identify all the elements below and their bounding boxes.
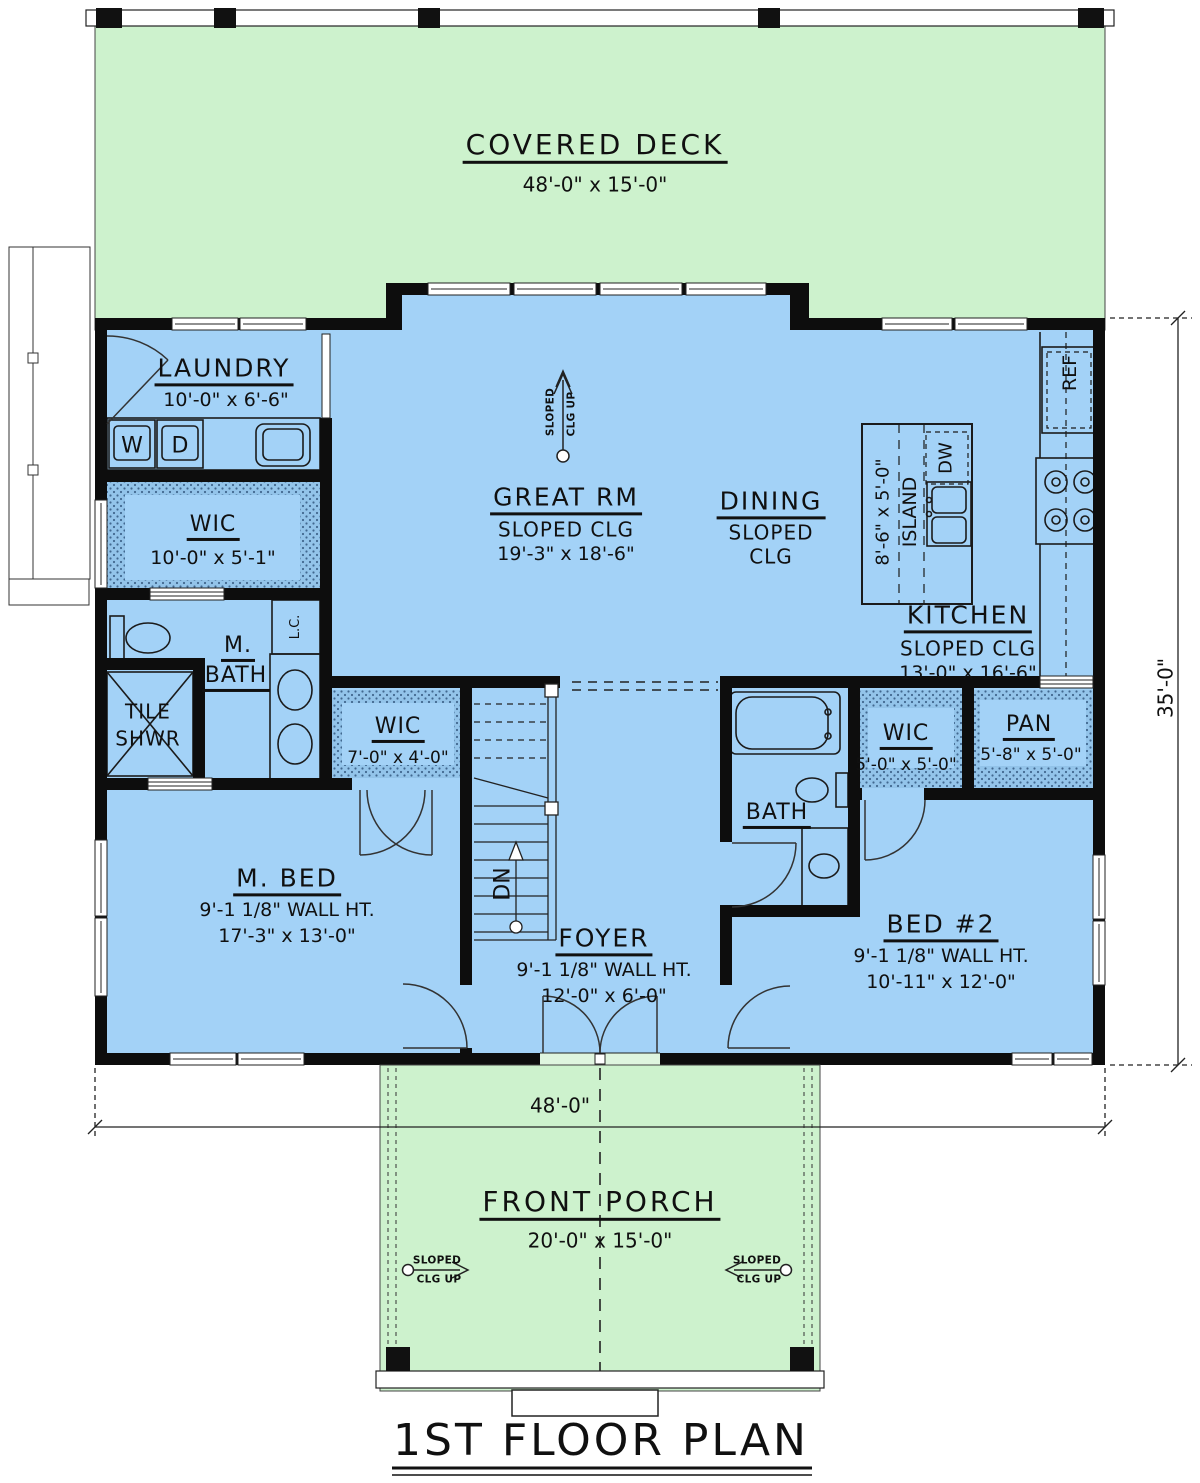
bed2-wall-ht: 9'-1 1/8" WALL HT. [853,947,1028,967]
porch-slope-right-2: CLG UP [737,1274,782,1285]
laundry-label: LAUNDRY [155,355,294,386]
tile-shower-label-1: TILE [125,702,171,723]
dining-label: DINING [717,488,826,519]
island-label: ISLAND [901,477,921,548]
pantry-label: PAN [1003,713,1055,741]
wic-bed2-dims: 5'-0" x 5'-0" [855,757,956,775]
laundry-dims: 10'-0" x 6'-6" [163,391,288,411]
overall-width-dim: 48'-0" [530,1096,590,1117]
washer-label: W [121,434,143,457]
wic-mbed-dims: 7'-0" x 4'-0" [347,750,448,768]
side-deck [9,247,90,605]
kitchen-dims: 13'-0" x 16'-6" [899,664,1037,684]
bed2-label: BED #2 [884,911,999,942]
master-bed-wall-ht: 9'-1 1/8" WALL HT. [199,901,374,921]
great-room-ceiling: SLOPED CLG [498,520,634,541]
overall-depth-dim: 35'-0" [1156,658,1177,718]
island-dims-label: 8'-6" x 5'-0" [875,458,894,565]
floor-plan: COVERED DECK 48'-0" x 15'-0" LAUNDRY 10'… [0,0,1200,1483]
great-slope-text-2: CLG UP [566,392,577,437]
master-bath-label-1: M. [221,634,255,662]
porch-slope-left-1: SLOPED [413,1255,461,1266]
bed2-dims: 10'-11" x 12'-0" [866,973,1016,993]
stairs-dn-label: DN [491,867,514,900]
master-bed-dims: 17'-3" x 13'-0" [218,927,356,947]
covered-deck-area [86,8,1114,330]
tile-shower-label-2: SHWR [115,729,180,750]
dishwasher-label: DW [938,442,957,474]
great-slope-text-1: SLOPED [545,388,556,436]
wic-bed2-label: WIC [880,722,933,750]
deck-dims: 48'-0" x 15'-0" [523,175,668,196]
refrigerator-label: REF [1061,355,1081,391]
foyer-wall-ht: 9'-1 1/8" WALL HT. [516,961,691,981]
dryer-label: D [172,434,189,457]
kitchen-ceiling: SLOPED CLG [900,639,1036,660]
deck-label: COVERED DECK [463,130,728,164]
great-room-label: GREAT RM [490,484,642,515]
master-bed-label: M. BED [233,865,341,896]
kitchen-label: KITCHEN [904,602,1032,633]
foyer-dims: 12'-0" x 6'-0" [541,987,666,1007]
porch-dims: 20'-0" x 15'-0" [528,1231,673,1252]
porch-slope-left-2: CLG UP [417,1274,462,1285]
linen-closet-label: L.C. [289,615,303,640]
wic-mbed-label: WIC [372,715,425,743]
dining-ceiling-1: SLOPED [729,523,814,544]
master-bath-label-2: BATH [202,664,270,692]
wic-master-dims: 10'-0" x 5'-1" [150,549,275,569]
wic-master-label: WIC [187,513,240,541]
title-underline [392,1468,812,1475]
bath2-label: BATH [743,801,811,829]
great-room-dims: 19'-3" x 18'-6" [497,545,635,565]
foyer-label: FOYER [555,925,652,956]
plan-title: 1ST FLOOR PLAN [393,1418,809,1464]
porch-slope-right-1: SLOPED [733,1255,781,1266]
pantry-dims: 5'-8" x 5'-0" [980,747,1081,765]
porch-label: FRONT PORCH [479,1187,720,1221]
dining-ceiling-2: CLG [749,547,793,568]
